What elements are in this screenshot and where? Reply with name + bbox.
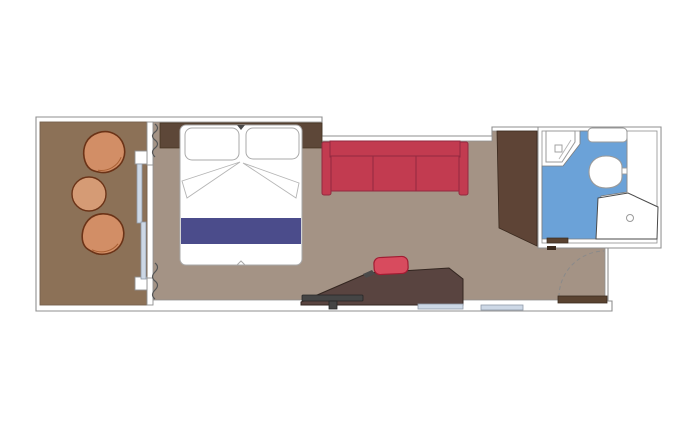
tv-screen (302, 295, 363, 301)
toilet (589, 156, 622, 188)
wardrobe-unit (497, 131, 537, 246)
wall-panel-left (418, 304, 463, 309)
divider-wall-top (147, 122, 153, 165)
divider-wall-bottom (147, 278, 153, 305)
sofa-cushion-3 (416, 156, 459, 191)
door-jamb-top (135, 151, 147, 164)
entry-door-leaf (558, 296, 607, 303)
bedroom (160, 123, 322, 265)
tv-stand (329, 301, 337, 309)
sliding-glass-panel-lower (141, 222, 146, 279)
sofa-cushion-2 (373, 156, 416, 191)
bathroom (538, 127, 661, 250)
cabin-floor-plan (0, 0, 700, 433)
sink-faucet (555, 145, 562, 152)
pillow-left (185, 128, 239, 160)
bathroom-shelf (588, 128, 627, 142)
toilet-flush-plate (622, 168, 627, 174)
balcony-table (72, 177, 106, 211)
sliding-glass-panel-upper (137, 164, 142, 223)
wardrobe (497, 131, 537, 246)
pillow-right (246, 128, 299, 159)
stool (374, 256, 409, 275)
blanket-band (181, 218, 301, 244)
sofa-cushion-1 (331, 156, 373, 191)
bathroom-door-sill (547, 238, 568, 243)
balcony (40, 122, 147, 305)
floor-plan-canvas (0, 0, 700, 433)
wall-panel-right (481, 305, 523, 310)
sofa (322, 141, 468, 195)
sofa-back (330, 141, 460, 157)
bathroom-door-mark (547, 246, 556, 250)
